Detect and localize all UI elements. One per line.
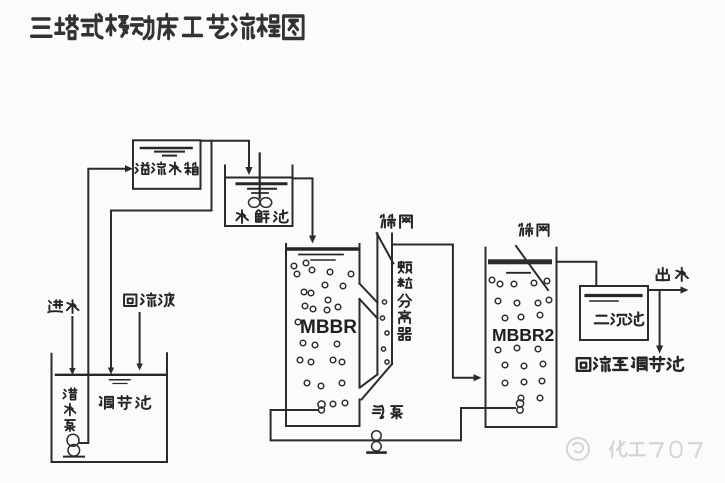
svg-text:MBBR: MBBR [300, 317, 357, 338]
svg-text:MBBR2: MBBR2 [492, 325, 554, 345]
